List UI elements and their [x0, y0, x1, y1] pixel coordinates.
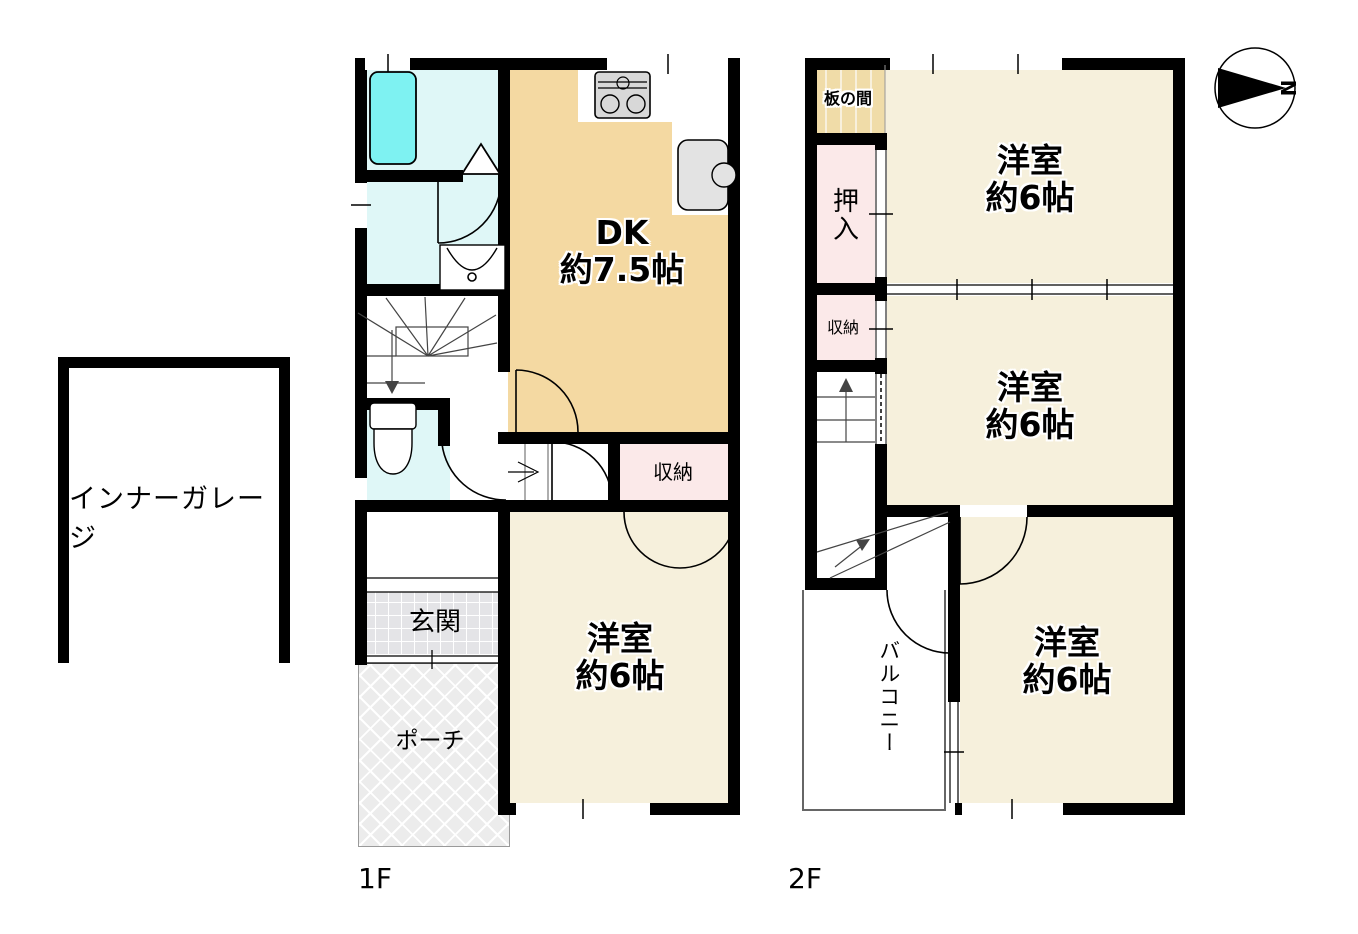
balcony-label: バルコニー — [876, 640, 900, 755]
dk-label: DK 約7.5帖 — [560, 215, 684, 289]
western-room-2f-south-label: 洋室 約6帖 — [1023, 625, 1112, 699]
oshiire-label: 押入 — [828, 187, 857, 243]
floor-1f-plan: DK 約7.5帖 洋室 約6帖 収納 玄関 ポーチ — [350, 52, 750, 852]
bathtub — [370, 72, 416, 164]
western-room-2f-center-label: 洋室 約6帖 — [986, 370, 1075, 444]
board-room-label: 板の間 — [824, 90, 872, 108]
porch-label: ポーチ — [396, 729, 465, 755]
western-room-1f-label: 洋室 約6帖 — [576, 621, 665, 695]
western-room-2f-north-label: 洋室 約6帖 — [986, 143, 1075, 217]
bath-folding-door — [462, 144, 500, 174]
floor-1f-caption: 1F — [358, 862, 392, 895]
kitchen-sink — [678, 140, 736, 210]
inner-garage-label: インナーガレージ — [69, 477, 279, 555]
stairs-1f — [358, 297, 497, 394]
stove — [595, 72, 650, 118]
compass-north-letter: N — [1276, 80, 1298, 97]
floorplan-canvas: インナーガレージ — [0, 0, 1358, 934]
floor-2f-plan: 板の間 押入 収納 洋室 約6帖 洋室 約6帖 洋室 約6帖 バルコニー — [800, 52, 1190, 852]
storage-2f-label: 収納 — [827, 319, 859, 337]
storage-1f-label: 収納 — [653, 461, 693, 483]
hall-steps-1f — [508, 444, 548, 500]
floor-2f-caption: 2F — [788, 862, 822, 895]
compass: N — [1212, 45, 1298, 131]
inner-garage: インナーガレージ — [58, 357, 290, 663]
entrance-label: 玄関 — [409, 608, 461, 637]
toilet-fixture — [370, 403, 416, 474]
